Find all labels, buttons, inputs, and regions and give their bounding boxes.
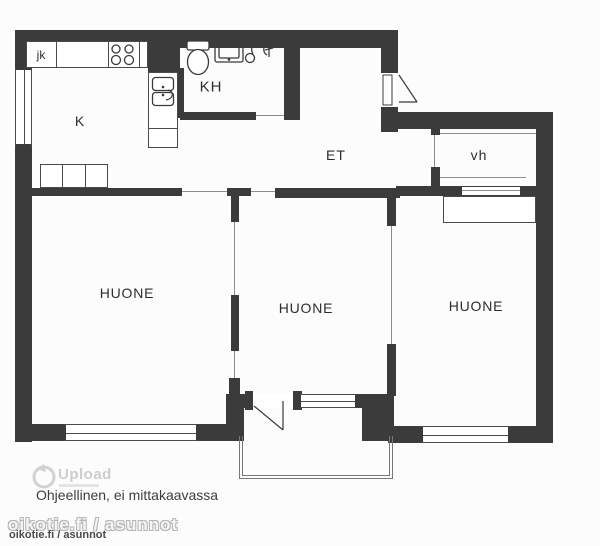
scale-note: Ohjeellinen, ei mittakaavassa [36, 487, 218, 503]
kitchen-cabinet [40, 164, 108, 188]
upload-watermark-text: Upload [58, 466, 112, 483]
balcony [239, 436, 393, 479]
stove-box [108, 41, 140, 68]
wall-right [536, 112, 553, 443]
closet-shelf-top [440, 133, 536, 134]
window-room2 [297, 394, 359, 408]
label-bathroom: KH [200, 79, 223, 96]
wall-bathroom-bottom [180, 112, 256, 120]
closet-sliding-door [434, 135, 435, 167]
closet-bottom-gap [462, 187, 520, 195]
label-room3: HUONE [449, 298, 504, 314]
doorway-room2 [251, 191, 275, 192]
wall-closet-door-stub-top [431, 115, 440, 135]
label-closet: vh [471, 147, 488, 163]
opening-room2-room3 [391, 226, 392, 344]
wall-bathroom-right [284, 48, 300, 120]
wall-hall-room2 [275, 188, 400, 198]
footer-watermark-small: oikotie.fi / asunnot [9, 529, 106, 541]
wall-room1-room2-b [231, 295, 239, 351]
doorway-room1 [182, 191, 227, 192]
label-kitchen: K [75, 113, 85, 129]
wall-t-piece [227, 188, 251, 196]
cabinet-divider-1 [62, 165, 63, 187]
label-fridge: jk [37, 48, 46, 62]
balcony-door-gap [253, 394, 293, 408]
balcony-door-post-left [245, 391, 253, 410]
label-room1: HUONE [100, 285, 155, 301]
wall-closet-door-stub-bottom [431, 167, 440, 188]
closet-gap-line [462, 190, 520, 191]
wardrobe-room3 [443, 196, 536, 223]
closet-shelf-bottom [440, 177, 526, 178]
sink-counter [148, 72, 178, 148]
window-room3 [419, 426, 512, 443]
wall-step [362, 394, 394, 441]
entry-door-gap [381, 73, 398, 107]
label-hall: ET [326, 147, 346, 163]
doorway-bathroom [256, 115, 284, 116]
wall-room1-room2-junction [226, 394, 244, 441]
sink-counter-divider [149, 128, 177, 129]
opening-room1-room2-a [234, 222, 235, 295]
wall-room1-room2-a [231, 196, 239, 222]
wall-closet-top [396, 112, 553, 129]
fridge-divider [56, 42, 57, 67]
cabinet-divider-2 [85, 165, 86, 187]
wall-room2-room3-a [387, 198, 396, 226]
wall-room1-room2-c [229, 378, 240, 398]
label-room2: HUONE [279, 300, 334, 316]
window-kitchen [15, 66, 32, 148]
upload-drop-icon [34, 464, 54, 487]
wall-kitchen-duct [148, 30, 180, 72]
wall-room2-room3-b [387, 344, 396, 396]
wall-kitchen-room1 [32, 188, 182, 196]
opening-room1-room2-b [234, 351, 235, 378]
wall-bathroom-left [178, 68, 184, 118]
floor-plan: jk K KH ET vh HUONE HUONE HUONE Upload O… [0, 0, 600, 546]
window-room1 [62, 424, 200, 441]
